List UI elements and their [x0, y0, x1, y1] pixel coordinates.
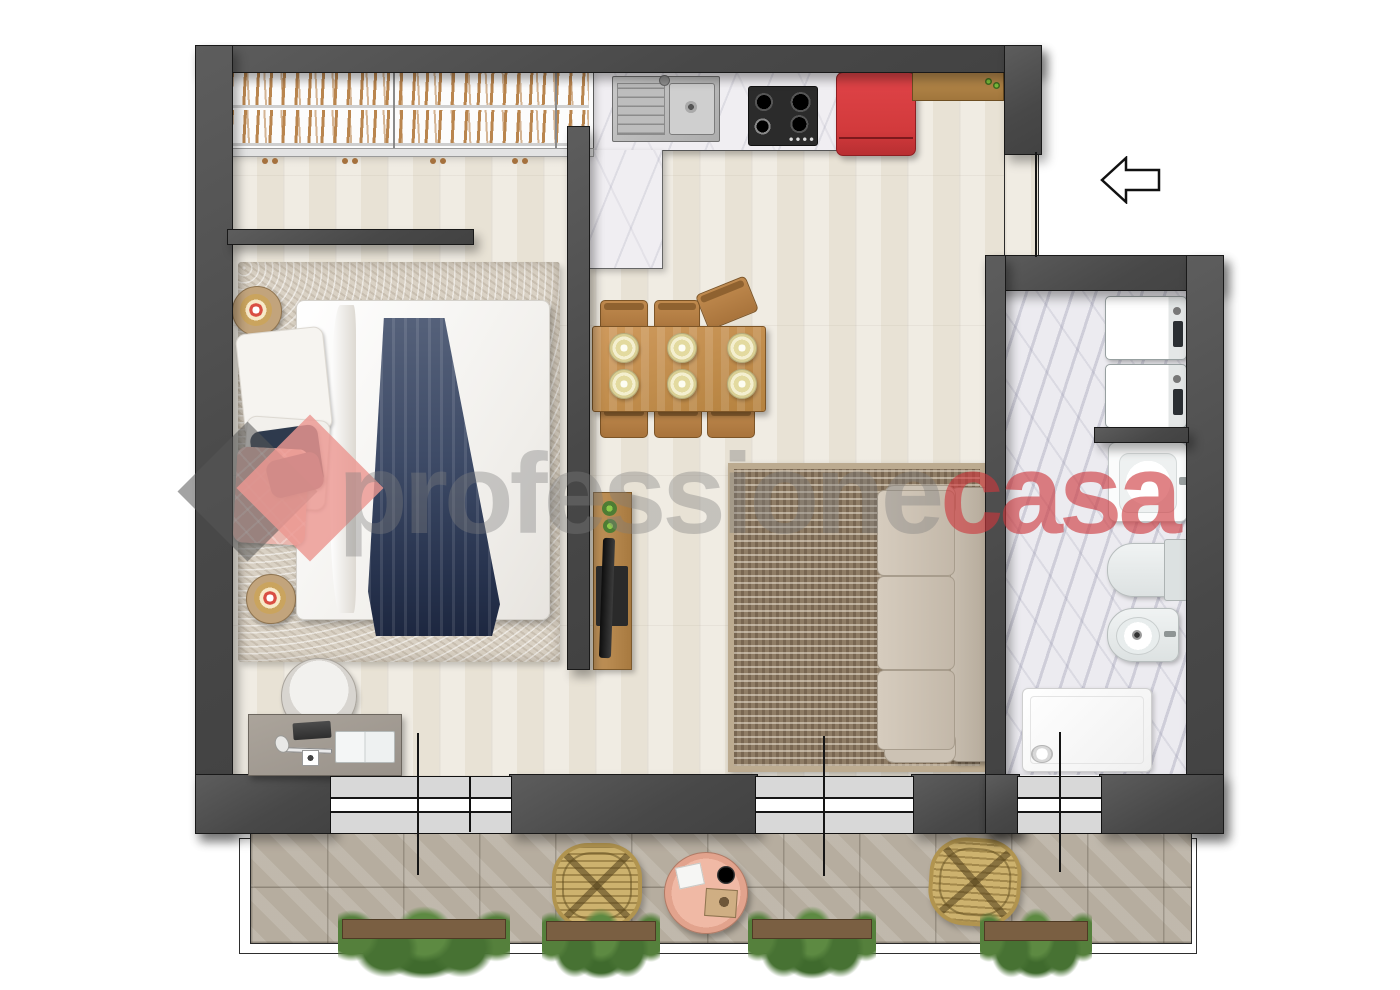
terrace-coffee-table — [664, 852, 748, 934]
nightstand-lamp-bottom — [246, 574, 296, 624]
bathroom-wall-bottom-right — [1099, 774, 1224, 834]
wall-top — [195, 45, 1042, 73]
wall-partition-horizontal — [227, 229, 474, 245]
terrace-planter — [338, 903, 510, 981]
shower-drain — [1031, 745, 1053, 763]
kitchen-floor-marble — [588, 150, 663, 269]
refrigerator-handle-line — [839, 137, 913, 139]
wardrobe-knob — [272, 158, 278, 164]
leader-line-bedroom — [417, 733, 419, 875]
wardrobe-knob — [430, 158, 436, 164]
terrace-planter — [980, 905, 1092, 981]
washer-display — [1173, 389, 1183, 415]
wall-right-upper — [1004, 45, 1042, 155]
sofa-seat-cushion — [877, 670, 955, 750]
bathroom-wall-right — [1186, 255, 1224, 834]
wardrobe-hanger-row-bottom — [231, 110, 589, 146]
watermark-text-gray: professione — [338, 431, 940, 558]
wardrobe — [226, 68, 594, 150]
washing-machine — [1105, 364, 1187, 428]
plate — [727, 369, 757, 399]
plate — [667, 333, 697, 363]
faucet-icon — [659, 75, 670, 86]
plate — [609, 369, 639, 399]
table-tray — [704, 888, 738, 918]
phone — [302, 750, 319, 766]
nightstand-lamp-top — [232, 286, 282, 336]
entrance-threshold-line — [1035, 152, 1037, 257]
wardrobe-knob — [352, 158, 358, 164]
table-lamp-icon — [254, 582, 286, 614]
table-cup — [717, 866, 735, 884]
bidet-drain — [1132, 630, 1142, 640]
wardrobe-knob — [440, 158, 446, 164]
terrace-planter — [748, 903, 876, 981]
terrace-planter — [542, 905, 660, 981]
gas-hob — [748, 86, 818, 146]
plate — [609, 333, 639, 363]
plate — [667, 369, 697, 399]
washer-display — [1173, 321, 1183, 347]
bidet — [1107, 608, 1179, 662]
leader-line-bathroom — [1059, 732, 1061, 872]
watermark-text: professionecasa — [338, 432, 1178, 557]
wardrobe-knob — [522, 158, 528, 164]
wardrobe-knob — [262, 158, 268, 164]
laptop — [292, 721, 331, 741]
bathroom-wall-bottom-left — [985, 774, 1020, 834]
open-book — [335, 731, 395, 763]
washer-knob — [1173, 307, 1181, 315]
wardrobe-hanger-row-top — [231, 72, 589, 108]
floor-plan-canvas: professionecasa — [0, 0, 1400, 990]
wall-bottom-middle — [509, 774, 758, 834]
kitchen-sink-unit — [612, 76, 720, 142]
wall-left — [195, 45, 233, 834]
shelf-plant-icon — [985, 78, 992, 85]
wardrobe-divider — [393, 69, 395, 149]
shower-tray — [1022, 688, 1152, 772]
wardrobe-divider — [555, 69, 557, 149]
sink-drain — [685, 101, 697, 113]
bedroom-window-mullion — [469, 776, 471, 832]
leader-line-living — [823, 736, 825, 876]
washer-knob — [1173, 375, 1181, 383]
shelf-plant-icon — [993, 82, 1000, 89]
sofa-seat-cushion — [877, 576, 955, 670]
wall-bottom-bedroom — [195, 774, 333, 834]
wall-partition-vertical — [567, 126, 590, 670]
faucet-icon — [1164, 631, 1176, 637]
washing-machine — [1105, 296, 1187, 360]
sink-drainboard — [617, 83, 665, 135]
wardrobe-knob — [342, 158, 348, 164]
watermark-text-accent: casa — [940, 431, 1178, 558]
wardrobe-knob — [512, 158, 518, 164]
refrigerator-red — [836, 72, 916, 156]
kitchen-wood-shelf — [912, 72, 1004, 101]
wardrobe-base-shelf — [226, 148, 594, 157]
table-book — [675, 863, 705, 890]
living-window — [755, 776, 914, 834]
plate — [727, 333, 757, 363]
table-lamp-icon — [240, 294, 272, 326]
entrance-arrow-icon — [1100, 156, 1162, 204]
entrance-floor-strip — [1004, 152, 1039, 259]
bedroom-window — [330, 776, 512, 834]
